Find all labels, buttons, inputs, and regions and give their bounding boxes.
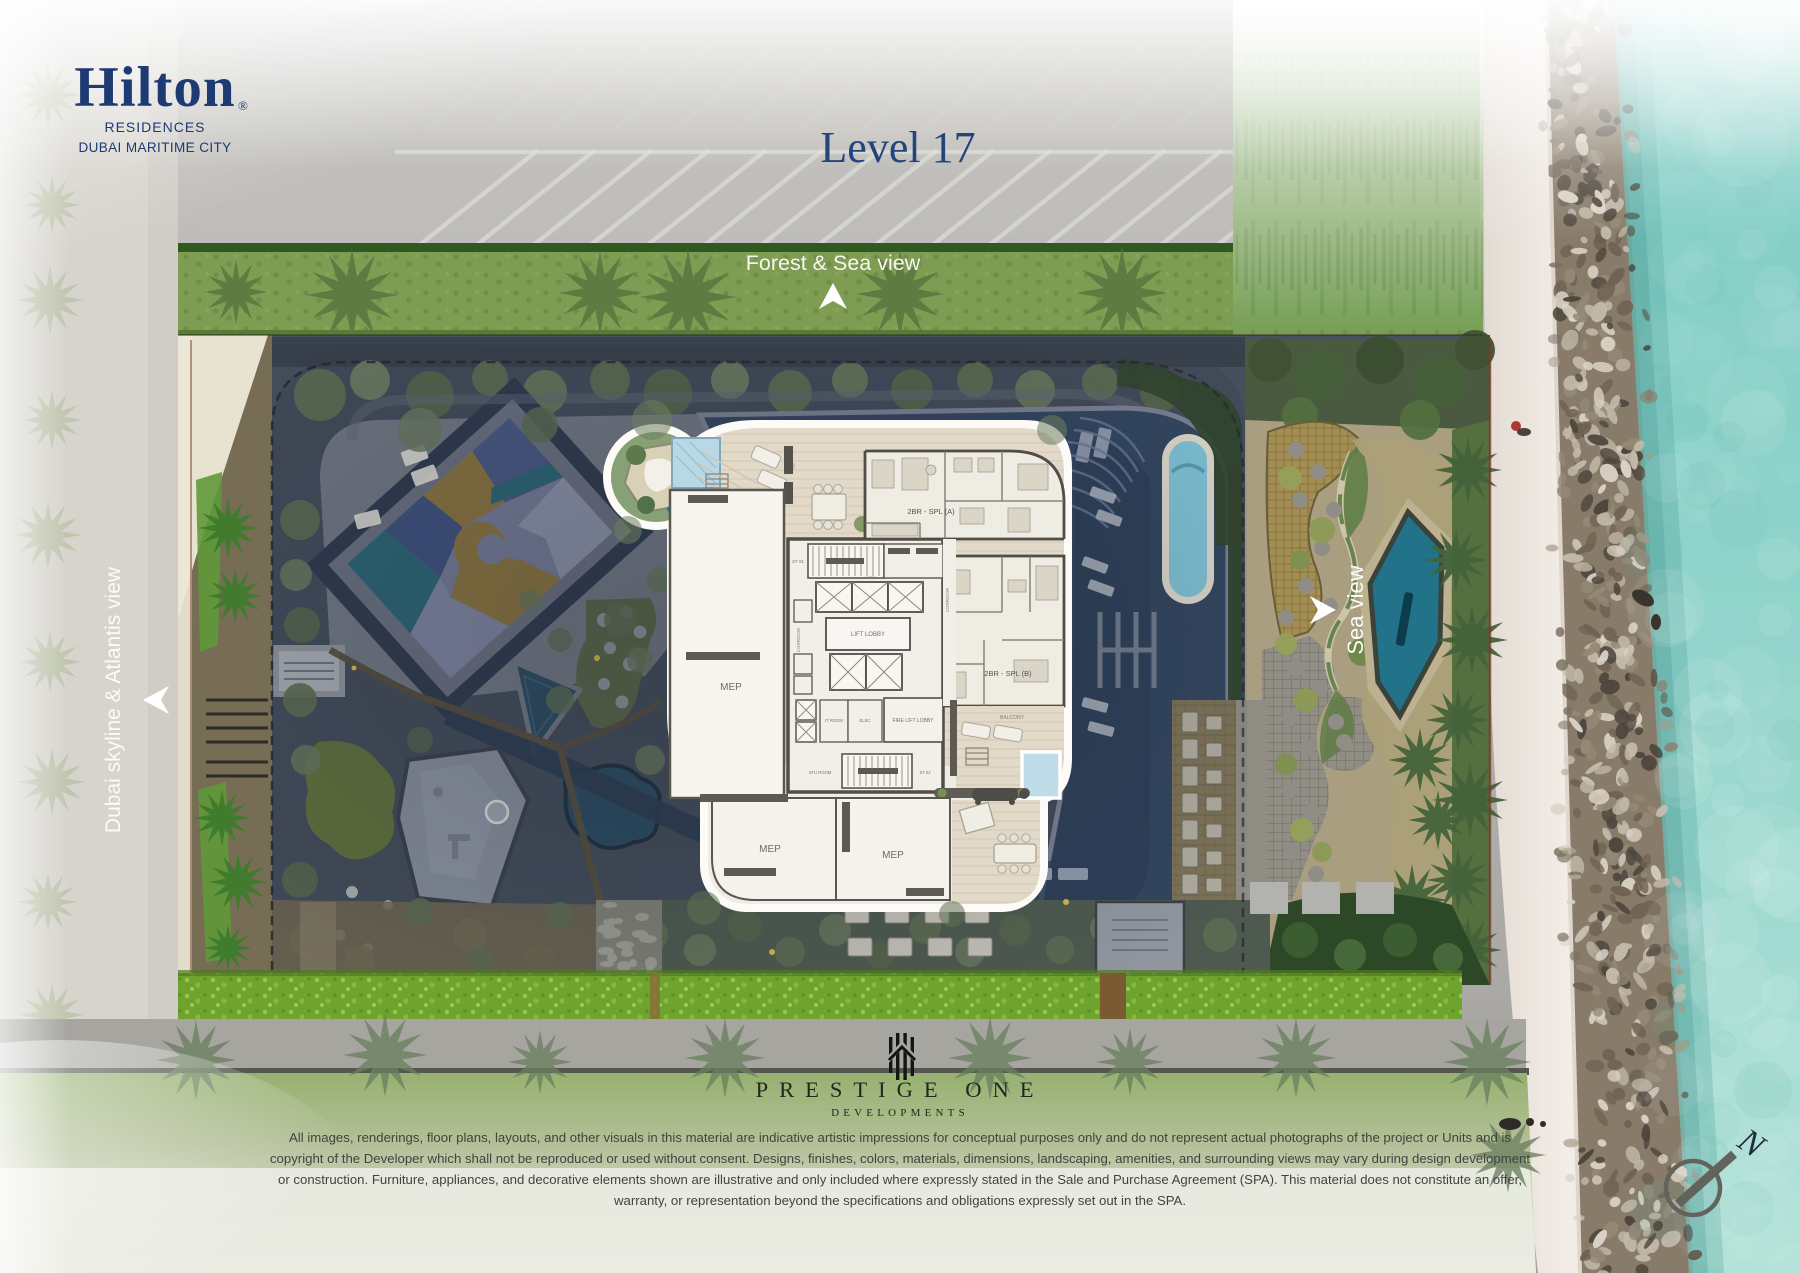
svg-text:or construction. Furniture, ap: or construction. Furniture, appliances, …	[278, 1172, 1522, 1187]
svg-text:LIFTS: LIFTS	[865, 575, 876, 580]
svg-text:Forest & Sea view: Forest & Sea view	[746, 251, 921, 275]
svg-text:Sea view: Sea view	[1343, 565, 1368, 654]
svg-text:Hilton: Hilton	[74, 56, 235, 119]
svg-text:ELEC: ELEC	[860, 718, 871, 723]
svg-text:All images, renderings, floor: All images, renderings, floor plans, lay…	[289, 1130, 1511, 1145]
svg-text:FIRE LIFT LOBBY: FIRE LIFT LOBBY	[892, 718, 934, 724]
svg-text:PRESTIGE ONE: PRESTIGE ONE	[756, 1077, 1045, 1102]
svg-text:CORRIDOR: CORRIDOR	[945, 587, 950, 612]
svg-text:2BR - SPL (A): 2BR - SPL (A)	[907, 507, 955, 516]
svg-text:STU ROOM: STU ROOM	[809, 770, 832, 775]
svg-text:IT ROOM: IT ROOM	[825, 718, 843, 723]
svg-text:Level 17: Level 17	[820, 123, 975, 172]
svg-text:RESIDENCES: RESIDENCES	[104, 119, 205, 135]
svg-text:copyright of the Developer whi: copyright of the Developer which shall n…	[270, 1151, 1530, 1166]
svg-text:MEP: MEP	[759, 844, 781, 855]
svg-text:LIFT LOBBY: LIFT LOBBY	[851, 632, 885, 638]
svg-text:DEVELOPMENTS: DEVELOPMENTS	[831, 1107, 969, 1119]
svg-text:BALCONY: BALCONY	[1000, 715, 1025, 721]
svg-text:2BR - SPL (B): 2BR - SPL (B)	[984, 669, 1032, 678]
svg-text:MEP: MEP	[882, 850, 904, 861]
svg-text:ST 01: ST 01	[792, 559, 804, 564]
svg-text:Dubai skyline & Atlantis view: Dubai skyline & Atlantis view	[102, 566, 125, 833]
svg-text:MEP: MEP	[720, 682, 742, 693]
svg-text:DUBAI MARITIME CITY: DUBAI MARITIME CITY	[78, 140, 231, 155]
svg-text:ST 02: ST 02	[919, 770, 931, 775]
svg-text:®: ®	[238, 98, 248, 113]
svg-text:CORRIDOR: CORRIDOR	[796, 627, 801, 652]
svg-text:warranty, or representation be: warranty, or representation beyond the s…	[613, 1193, 1186, 1208]
